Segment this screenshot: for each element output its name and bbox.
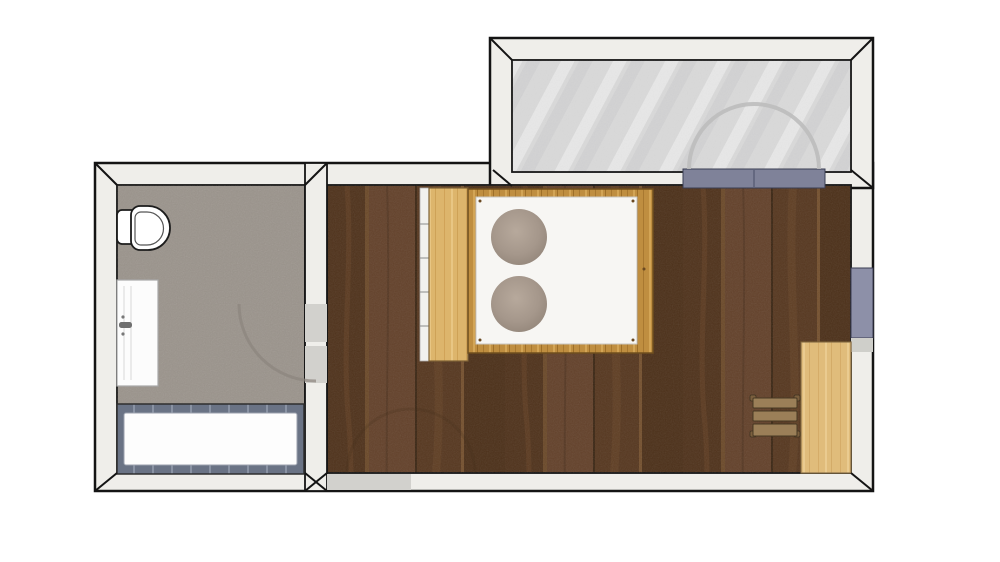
toilet (117, 206, 170, 250)
window-sill (851, 338, 873, 352)
chair-slat (753, 398, 797, 408)
bed-frame-peg (643, 268, 646, 271)
bed-frame-peg (632, 339, 635, 342)
desk (801, 342, 851, 473)
room-balcony (490, 38, 873, 188)
chair (750, 395, 800, 437)
desk-highlight (801, 342, 851, 473)
floor-plan-canvas (0, 0, 1000, 562)
window-glass (851, 268, 873, 338)
round-pillow (491, 276, 547, 332)
bathtub-basin (124, 413, 297, 465)
bedroom-entry-opening (327, 474, 411, 490)
door-opening-lower (305, 346, 327, 383)
floor-plan (0, 0, 1000, 562)
door-opening-upper (305, 304, 327, 342)
bathroom-door-panel (117, 280, 158, 386)
chair-slat (753, 411, 797, 421)
balcony-floor-grain (512, 60, 851, 172)
bed-frame-peg (479, 200, 482, 203)
door-keyhole-dot (121, 315, 124, 318)
door-keyhole-dot (121, 332, 124, 335)
bed-frame-peg (632, 200, 635, 203)
round-pillow (491, 209, 547, 265)
door-handle (119, 322, 132, 328)
right-wall-window (851, 268, 873, 352)
bed-frame-peg (479, 339, 482, 342)
double-bed (468, 189, 653, 353)
balcony-double-door (683, 169, 825, 188)
wardrobe (420, 188, 468, 361)
bathtub (117, 404, 304, 474)
wardrobe-track (420, 188, 429, 361)
wardrobe-body (429, 188, 468, 361)
chair-slat (753, 424, 797, 436)
